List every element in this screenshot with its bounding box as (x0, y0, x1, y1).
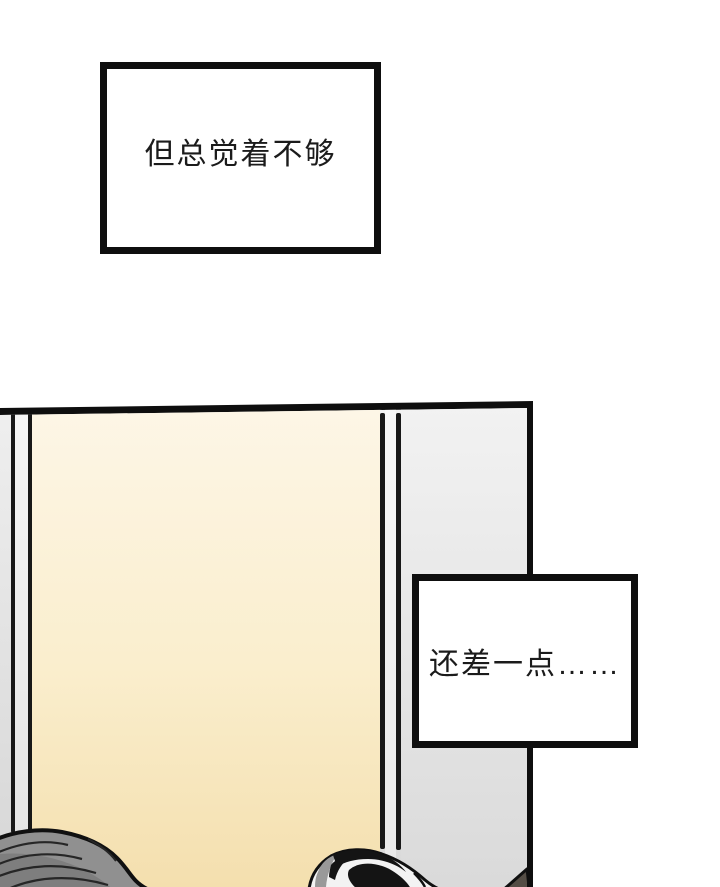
wall-trim-line-3 (380, 413, 385, 849)
characters-artwork (0, 825, 527, 887)
gray-hair-head (0, 830, 170, 887)
dark-swirl-hair-head (305, 850, 448, 887)
corner-hair-wedge (502, 869, 527, 887)
caption-text-2: 还差一点…… (429, 639, 621, 683)
wall-trim-line-1 (11, 413, 15, 833)
comic-page: 但总觉着不够 (0, 0, 720, 887)
wall-trim-line-2 (28, 413, 32, 834)
left-wall-strip-outer (0, 401, 11, 887)
caption-box-1: 但总觉着不够 (100, 62, 381, 254)
caption-text-1: 但总觉着不够 (145, 129, 337, 173)
right-wall-strip (385, 401, 396, 887)
wall-trim-line-4 (396, 413, 401, 850)
cream-wall (32, 401, 380, 887)
caption-box-2: 还差一点…… (412, 574, 638, 748)
left-wall-strip-inner (15, 401, 28, 887)
